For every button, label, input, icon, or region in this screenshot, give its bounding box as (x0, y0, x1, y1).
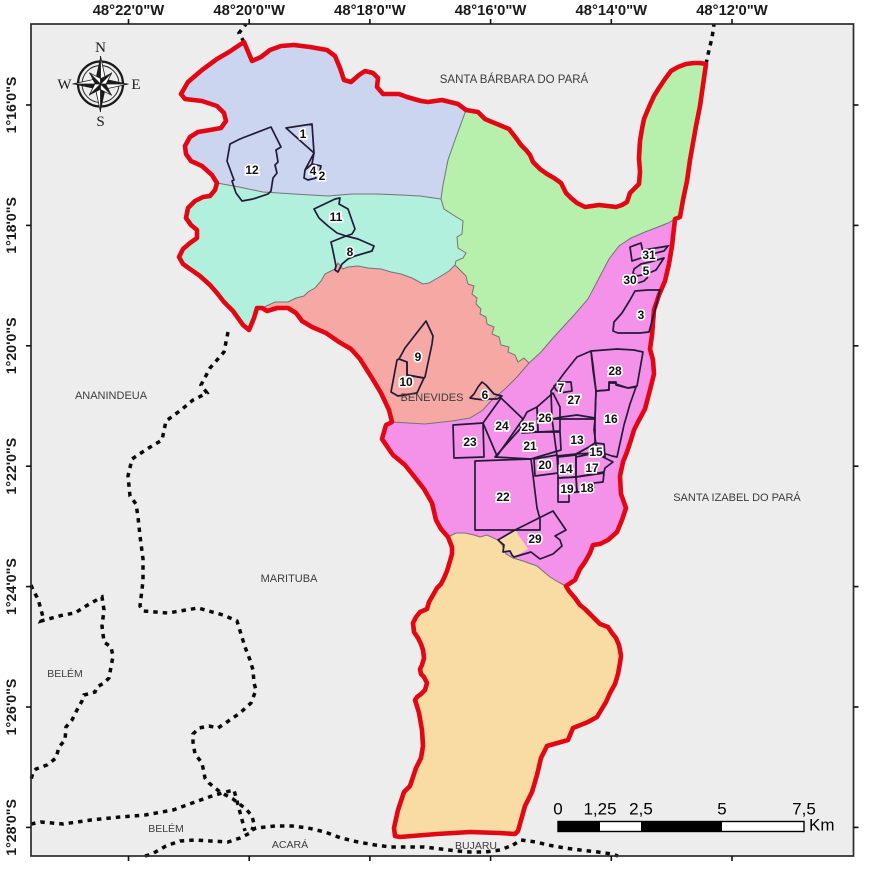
svg-text:25: 25 (521, 420, 535, 434)
svg-text:16: 16 (604, 412, 618, 426)
svg-text:14: 14 (559, 462, 573, 476)
svg-text:1°22'0"S: 1°22'0"S (4, 438, 20, 495)
svg-text:8: 8 (347, 245, 354, 259)
svg-text:1°16'0"S: 1°16'0"S (4, 77, 20, 134)
svg-text:3: 3 (638, 308, 645, 322)
svg-text:ACARÁ: ACARÁ (272, 838, 308, 851)
svg-text:15: 15 (589, 445, 603, 459)
svg-text:48°20'0"W: 48°20'0"W (213, 3, 285, 19)
svg-text:1: 1 (300, 127, 307, 141)
svg-text:24: 24 (495, 419, 509, 433)
svg-text:27: 27 (567, 393, 581, 407)
svg-text:31: 31 (642, 248, 656, 262)
svg-text:48°16'0"W: 48°16'0"W (455, 3, 527, 19)
svg-text:20: 20 (538, 458, 552, 472)
svg-text:2,5: 2,5 (629, 800, 653, 819)
svg-text:6: 6 (482, 388, 489, 402)
svg-text:48°22'0"W: 48°22'0"W (93, 3, 165, 19)
svg-text:W: W (57, 77, 72, 93)
svg-text:5: 5 (717, 800, 726, 819)
svg-text:1°28'0"S: 1°28'0"S (4, 799, 20, 856)
svg-text:10: 10 (399, 375, 413, 389)
svg-text:23: 23 (463, 435, 477, 449)
svg-text:0: 0 (553, 800, 562, 819)
svg-text:SANTA BÁRBARA DO PARÁ: SANTA BÁRBARA DO PARÁ (440, 73, 589, 86)
svg-text:18: 18 (580, 481, 594, 495)
svg-text:E: E (131, 77, 140, 93)
svg-text:12: 12 (245, 163, 259, 177)
svg-text:11: 11 (330, 210, 343, 224)
svg-text:21: 21 (523, 439, 537, 453)
svg-text:MARITUBA: MARITUBA (261, 573, 319, 585)
svg-text:N: N (95, 40, 106, 56)
svg-text:28: 28 (608, 364, 622, 378)
svg-text:48°14'0"W: 48°14'0"W (576, 3, 648, 19)
svg-text:1°24'0"S: 1°24'0"S (4, 558, 20, 615)
svg-text:26: 26 (538, 411, 552, 425)
svg-text:ANANINDEUA: ANANINDEUA (75, 390, 148, 402)
svg-text:1°18'0"S: 1°18'0"S (4, 197, 20, 254)
svg-text:BELÉM: BELÉM (148, 822, 184, 835)
svg-text:1,25: 1,25 (583, 800, 616, 819)
svg-text:S: S (96, 114, 104, 130)
svg-text:19: 19 (560, 482, 574, 496)
svg-text:22: 22 (496, 490, 510, 504)
svg-text:5: 5 (643, 264, 650, 278)
svg-text:BUJARU: BUJARU (455, 840, 497, 852)
svg-text:13: 13 (570, 433, 584, 447)
svg-text:1°20'0"S: 1°20'0"S (4, 317, 20, 374)
svg-text:BENEVIDES: BENEVIDES (401, 392, 464, 404)
svg-text:48°12'0"W: 48°12'0"W (696, 3, 768, 19)
svg-text:7: 7 (558, 381, 565, 395)
svg-text:4: 4 (310, 164, 317, 178)
svg-text:17: 17 (585, 461, 599, 475)
svg-text:9: 9 (415, 350, 422, 364)
svg-text:Km: Km (809, 816, 835, 835)
svg-text:29: 29 (528, 532, 542, 546)
svg-text:1°26'0"S: 1°26'0"S (4, 679, 20, 736)
svg-text:30: 30 (623, 273, 637, 287)
svg-text:48°18'0"W: 48°18'0"W (334, 3, 406, 19)
svg-text:SANTA IZABEL DO PARÁ: SANTA IZABEL DO PARÁ (673, 491, 801, 504)
svg-text:2: 2 (319, 169, 326, 183)
svg-text:BELÉM: BELÉM (47, 667, 83, 680)
